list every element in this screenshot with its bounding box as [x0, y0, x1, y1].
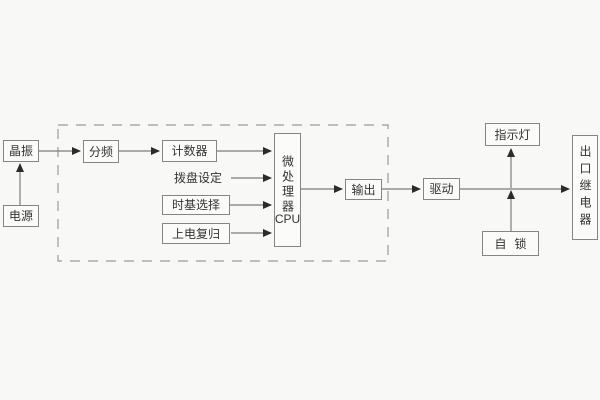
node-label: 晶振: [9, 145, 33, 157]
node-crystal-oscillator: 晶振: [3, 140, 39, 162]
diagram-canvas: 晶振 电源 分频 计数器 拨盘设定 时基选择 上电复归 微处理器 CPU 输出 …: [0, 0, 600, 400]
node-label: 微处理器: [282, 155, 294, 215]
node-output: 输出: [345, 179, 382, 200]
node-self-lock: 自锁: [482, 231, 539, 256]
node-timebase-select: 时基选择: [162, 195, 230, 215]
node-label: 时基选择: [172, 199, 220, 211]
node-label: 计数器: [171, 145, 207, 157]
node-label: 电源: [9, 210, 33, 222]
node-label: 驱动: [429, 183, 453, 195]
node-label: 拨盘设定: [174, 172, 222, 184]
node-label: 出口继电器: [579, 145, 591, 230]
node-label: 分频: [89, 146, 113, 158]
node-indicator-lamp: 指示灯: [485, 123, 540, 146]
node-exit-relay: 出口继电器: [572, 135, 598, 240]
node-counter: 计数器: [162, 140, 217, 162]
node-label: 输出: [351, 184, 375, 196]
node-power-supply: 电源: [3, 205, 39, 227]
label-dial-setting: 拨盘设定: [168, 171, 228, 185]
node-sublabel: CPU: [275, 213, 300, 225]
node-label: 指示灯: [494, 129, 530, 141]
node-frequency-divider: 分频: [83, 140, 119, 163]
node-label: 上电复归: [172, 228, 220, 240]
node-power-on-reset: 上电复归: [162, 223, 230, 244]
node-label: 自锁: [494, 238, 534, 250]
node-microprocessor-cpu: 微处理器 CPU: [274, 133, 301, 247]
node-drive: 驱动: [423, 178, 460, 200]
